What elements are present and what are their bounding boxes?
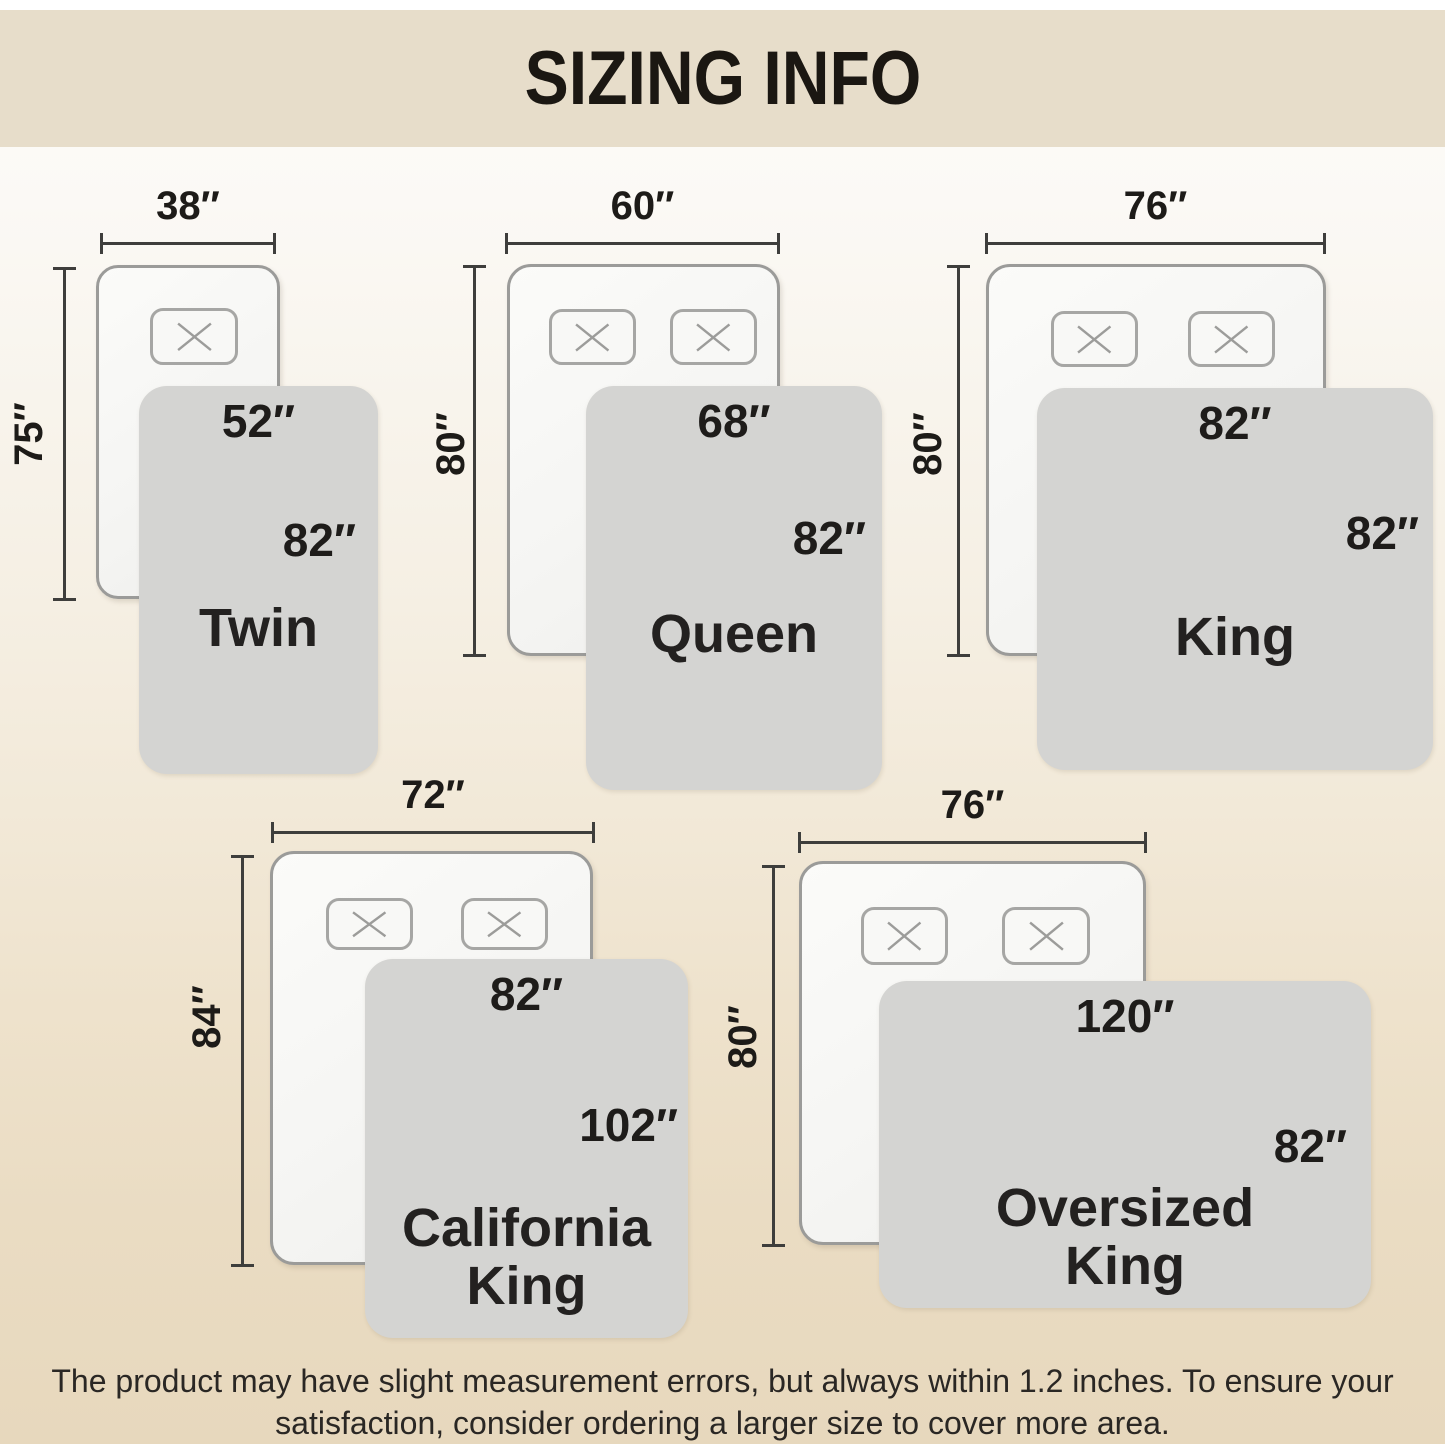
length-dimension-label: 80″ bbox=[721, 977, 767, 1097]
length-dimension-label: 84″ bbox=[185, 957, 231, 1077]
length-dimension-line bbox=[241, 855, 244, 1267]
blanket-size-name: King bbox=[1037, 608, 1433, 666]
pillow bbox=[1188, 311, 1275, 367]
width-dimension-line bbox=[985, 242, 1326, 245]
blanket-size-name: Twin bbox=[139, 599, 378, 657]
length-dimension-label: 80″ bbox=[429, 384, 475, 504]
pillow bbox=[1051, 311, 1138, 367]
header-band: SIZING INFO bbox=[0, 10, 1445, 147]
pillow bbox=[861, 907, 948, 965]
blanket-width-label: 120″ bbox=[879, 989, 1371, 1043]
width-dimension-label: 72″ bbox=[271, 773, 595, 817]
pillow-x-icon bbox=[572, 322, 613, 353]
page-title: SIZING INFO bbox=[524, 35, 921, 122]
pillow-x-icon bbox=[884, 920, 925, 952]
width-dimension-label: 60″ bbox=[505, 184, 780, 228]
pillow-x-icon bbox=[1074, 324, 1115, 355]
pillow bbox=[326, 898, 413, 950]
blanket-width-label: 82″ bbox=[1037, 396, 1433, 450]
blanket-width-label: 52″ bbox=[139, 394, 378, 448]
width-dimension-line bbox=[100, 242, 276, 245]
blanket-size-name: Queen bbox=[586, 605, 882, 663]
sizing-infographic: SIZING INFO 38″ 75″ 52″ 82″ Twin 60″ 80″ bbox=[0, 0, 1445, 1444]
pillow bbox=[670, 309, 757, 365]
blanket-length-label: 82″ bbox=[793, 511, 866, 565]
blanket-length-label: 102″ bbox=[579, 1098, 678, 1152]
width-dimension-line bbox=[798, 841, 1147, 844]
blanket: 120″ 82″ Oversized King bbox=[879, 981, 1371, 1308]
pillow bbox=[461, 898, 548, 950]
top-white-strip bbox=[0, 0, 1445, 10]
pillow-x-icon bbox=[174, 321, 215, 353]
length-dimension-line bbox=[957, 265, 960, 657]
blanket: 68″ 82″ Queen bbox=[586, 386, 882, 790]
blanket-size-name: California King bbox=[371, 1199, 683, 1316]
blanket-width-label: 82″ bbox=[365, 967, 688, 1021]
length-dimension-label: 75″ bbox=[7, 374, 53, 494]
disclaimer: The product may have slight measurement … bbox=[0, 1360, 1445, 1444]
pillow-x-icon bbox=[1211, 324, 1252, 355]
blanket: 82″ 102″ California King bbox=[365, 959, 688, 1338]
width-dimension-line bbox=[505, 242, 780, 245]
disclaimer-line-1: The product may have slight measurement … bbox=[0, 1360, 1445, 1402]
length-dimension-line bbox=[63, 267, 66, 601]
length-dimension-label: 80″ bbox=[906, 384, 952, 504]
pillow bbox=[1002, 907, 1090, 965]
width-dimension-label: 76″ bbox=[985, 184, 1326, 228]
pillow bbox=[549, 309, 636, 365]
pillow bbox=[150, 308, 238, 365]
blanket-length-label: 82″ bbox=[1274, 1119, 1347, 1173]
blanket: 52″ 82″ Twin bbox=[139, 386, 378, 774]
blanket-size-name: Oversized King bbox=[960, 1179, 1290, 1296]
blanket-length-label: 82″ bbox=[283, 513, 356, 567]
length-dimension-line bbox=[772, 865, 775, 1247]
width-dimension-label: 38″ bbox=[100, 184, 276, 228]
pillow-x-icon bbox=[349, 910, 390, 939]
blanket-length-label: 82″ bbox=[1346, 506, 1419, 560]
pillow-x-icon bbox=[1026, 920, 1067, 952]
pillow-x-icon bbox=[693, 322, 734, 353]
width-dimension-line bbox=[271, 831, 595, 834]
blanket-width-label: 68″ bbox=[586, 394, 882, 448]
disclaimer-line-2: satisfaction, consider ordering a larger… bbox=[0, 1402, 1445, 1444]
width-dimension-label: 76″ bbox=[798, 783, 1147, 827]
pillow-x-icon bbox=[484, 910, 525, 939]
blanket: 82″ 82″ King bbox=[1037, 388, 1433, 770]
